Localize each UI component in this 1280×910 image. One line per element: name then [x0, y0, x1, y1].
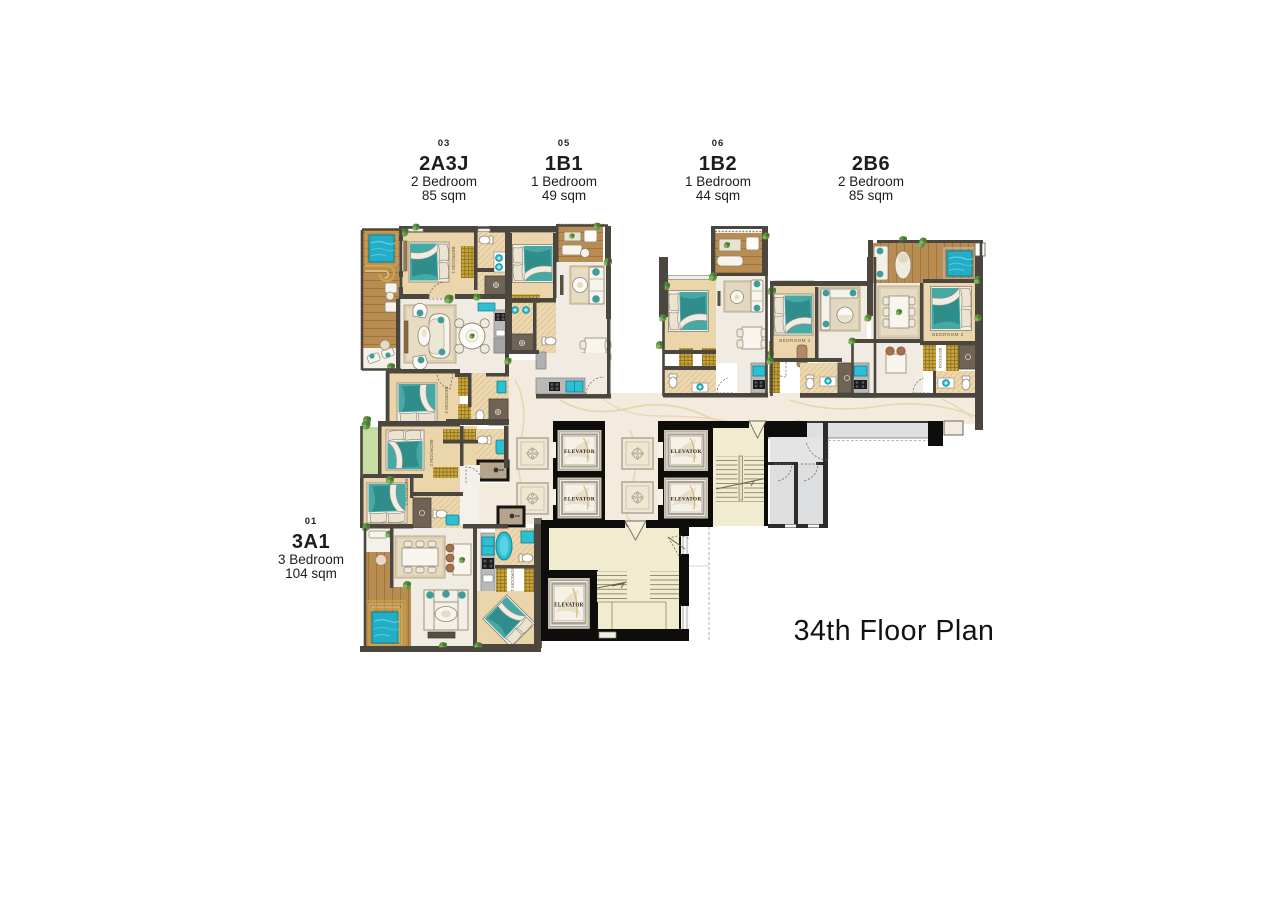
svg-text:01: 01 — [305, 516, 318, 527]
svg-text:BEDROOM 3: BEDROOM 3 — [404, 478, 409, 506]
svg-text:BEDROOM 1: BEDROOM 1 — [510, 564, 515, 592]
svg-text:44 sqm: 44 sqm — [696, 188, 740, 203]
svg-text:BEDROOM: BEDROOM — [938, 348, 943, 369]
svg-text:2 Bedroom: 2 Bedroom — [838, 174, 904, 189]
svg-text:85 sqm: 85 sqm — [849, 188, 893, 203]
svg-text:3A1: 3A1 — [292, 531, 330, 553]
svg-text:BEDROOM 2: BEDROOM 2 — [429, 439, 434, 467]
svg-text:85 sqm: 85 sqm — [422, 188, 466, 203]
svg-text:3 Bedroom: 3 Bedroom — [278, 552, 344, 567]
svg-text:2B6: 2B6 — [852, 153, 890, 175]
svg-text:104 sqm: 104 sqm — [285, 566, 337, 581]
svg-text:06: 06 — [712, 138, 725, 149]
svg-text:BEDROOM 1: BEDROOM 1 — [451, 246, 456, 274]
svg-text:BEDROOM 2: BEDROOM 2 — [444, 386, 449, 414]
svg-text:BEDROOM 1: BEDROOM 1 — [779, 338, 811, 343]
svg-text:1 Bedroom: 1 Bedroom — [531, 174, 597, 189]
svg-text:BEDROOM 2: BEDROOM 2 — [932, 332, 964, 337]
svg-text:1B1: 1B1 — [545, 153, 583, 175]
svg-text:2A3J: 2A3J — [419, 153, 469, 175]
svg-text:1B2: 1B2 — [699, 153, 737, 175]
svg-text:2 Bedroom: 2 Bedroom — [411, 174, 477, 189]
svg-text:1 Bedroom: 1 Bedroom — [685, 174, 751, 189]
svg-text:49 sqm: 49 sqm — [542, 188, 586, 203]
svg-text:34th Floor Plan: 34th Floor Plan — [794, 615, 995, 647]
svg-text:05: 05 — [558, 138, 571, 149]
svg-text:03: 03 — [438, 138, 451, 149]
